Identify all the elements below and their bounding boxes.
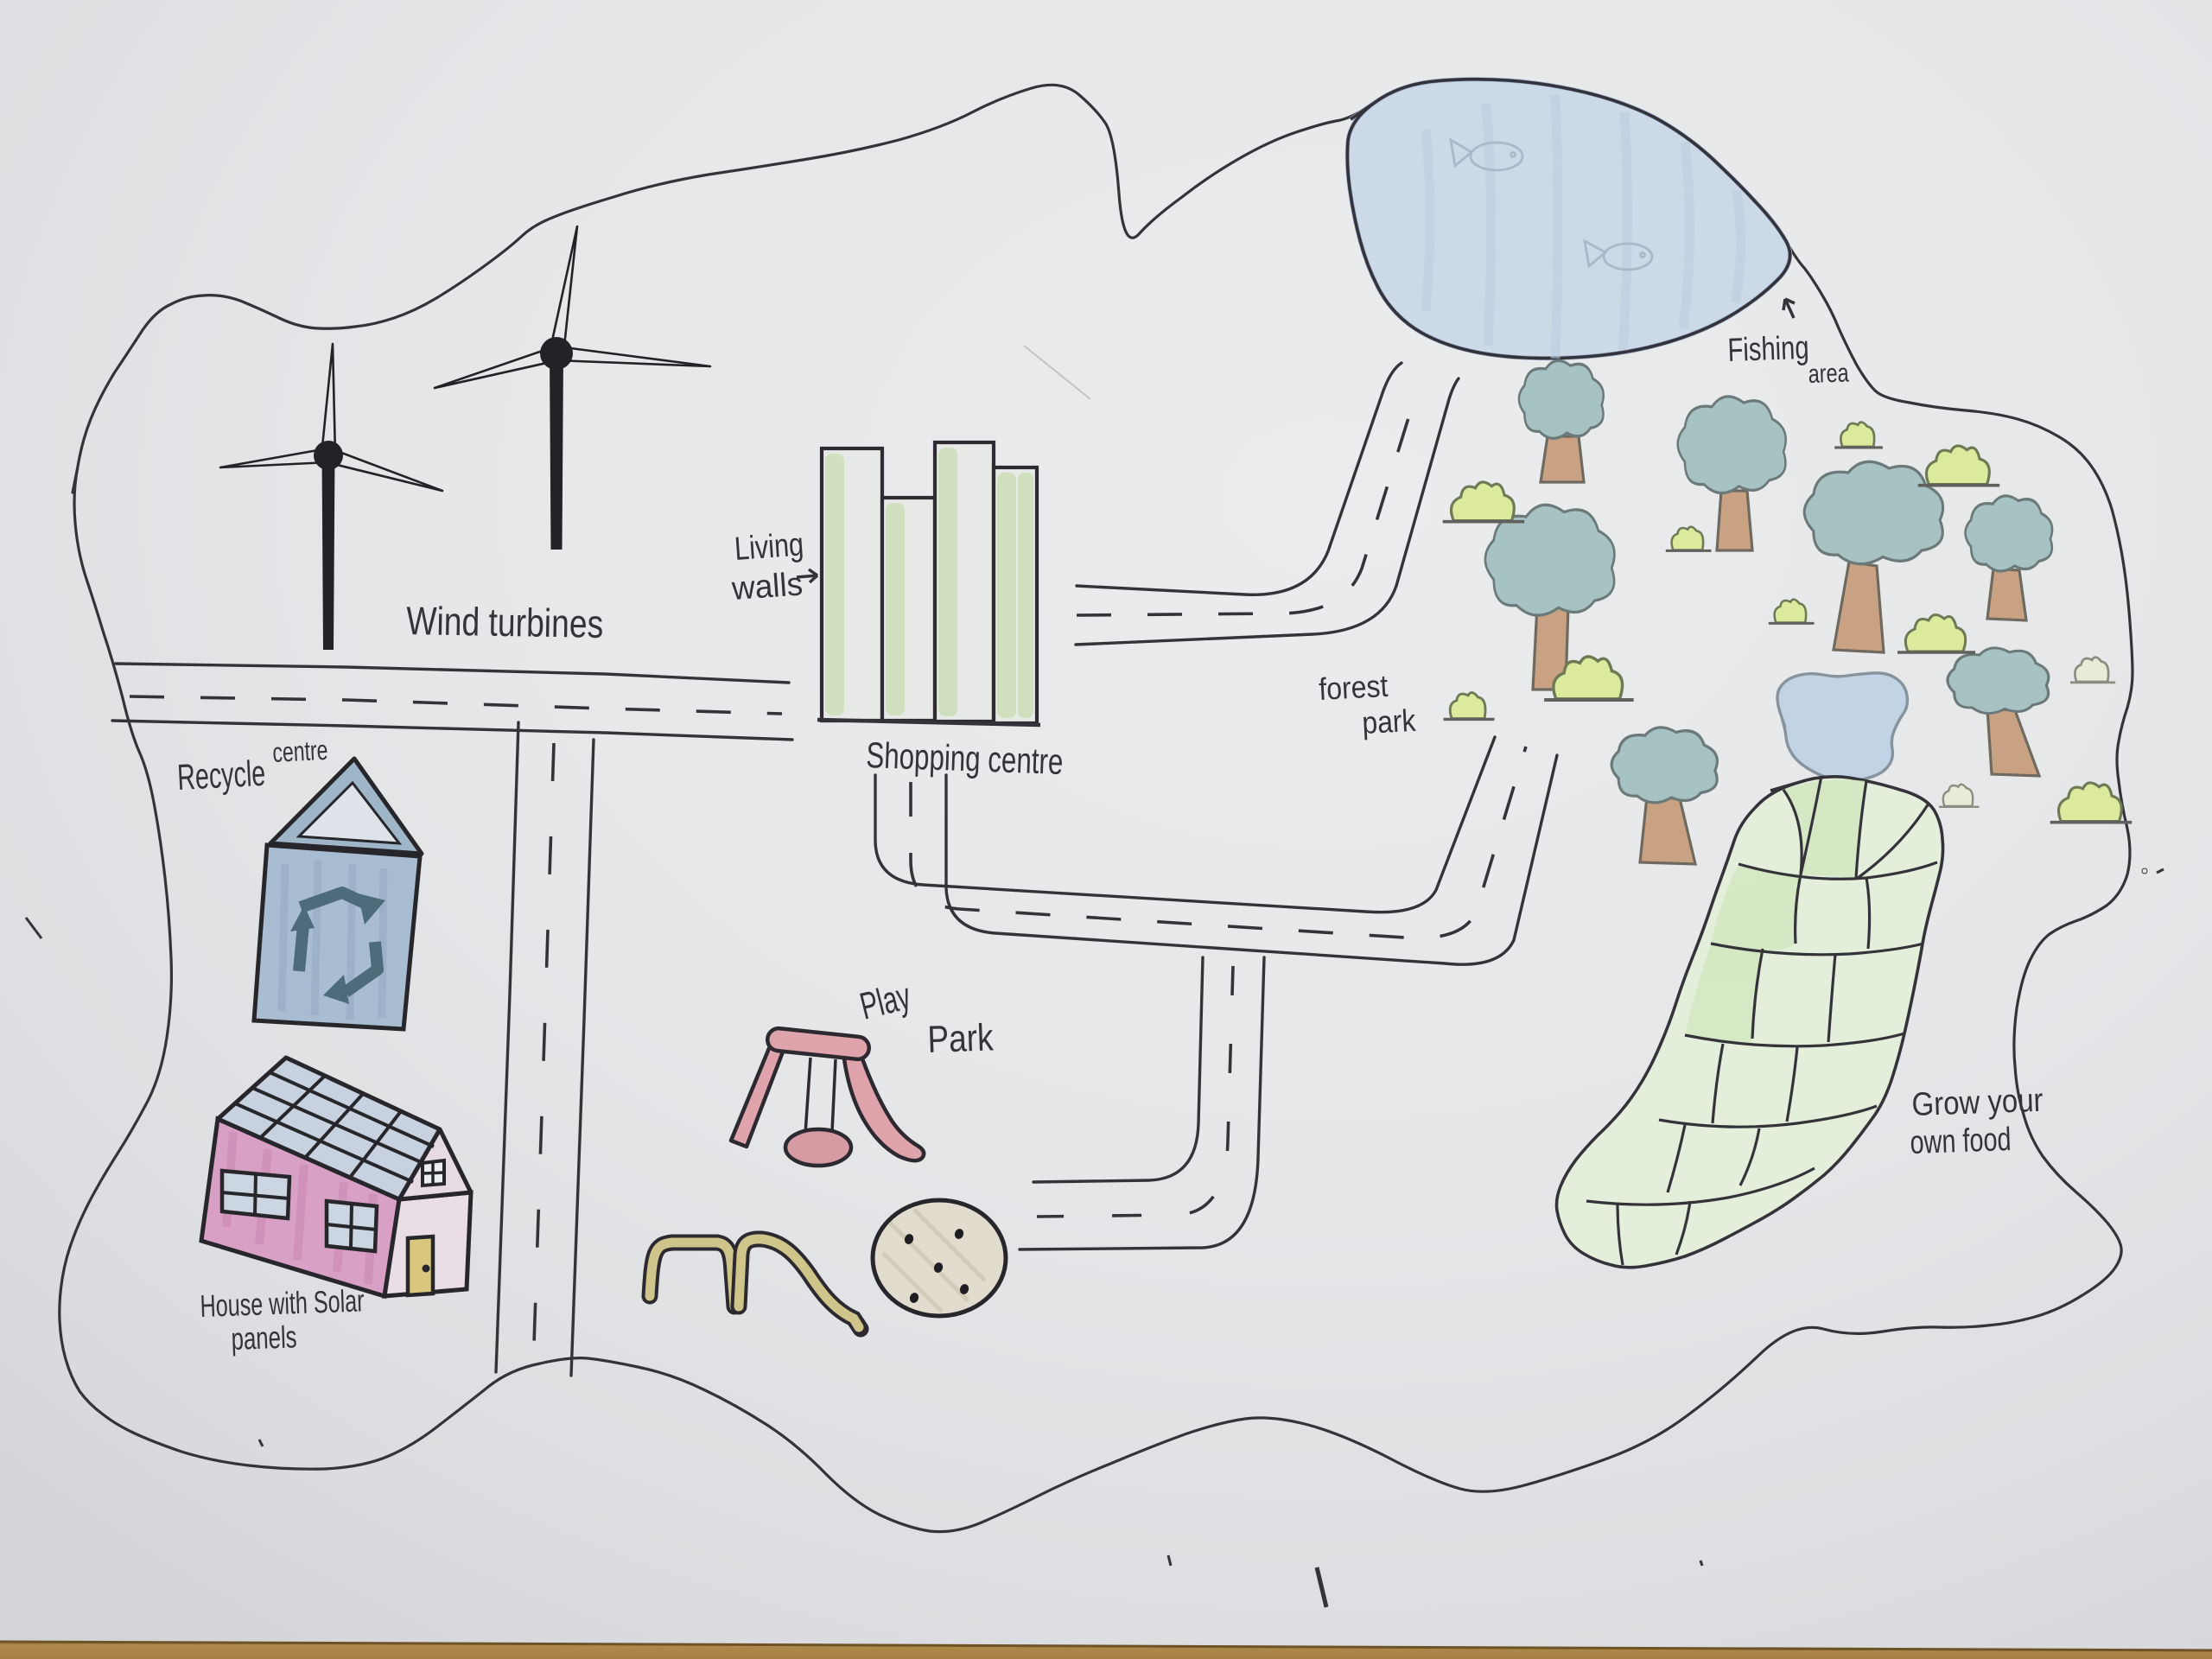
svg-text:Park: Park bbox=[927, 1016, 995, 1061]
svg-text:House with Solar: House with Solar bbox=[200, 1282, 365, 1324]
svg-text:forest: forest bbox=[1318, 668, 1389, 707]
svg-text:own food: own food bbox=[1910, 1122, 2012, 1161]
svg-text:centre: centre bbox=[271, 734, 328, 768]
svg-text:panels: panels bbox=[231, 1319, 297, 1357]
svg-text:Wind turbines: Wind turbines bbox=[406, 598, 604, 646]
svg-text:Shopping centre: Shopping centre bbox=[866, 734, 1065, 782]
svg-text:area: area bbox=[1808, 359, 1849, 389]
svg-text:park: park bbox=[1361, 702, 1417, 741]
svg-text:walls: walls bbox=[730, 566, 804, 607]
svg-text:Living: Living bbox=[734, 526, 805, 567]
svg-text:Fishing: Fishing bbox=[1727, 330, 1809, 369]
svg-text:Recycle: Recycle bbox=[176, 753, 266, 798]
svg-text:Grow your: Grow your bbox=[1911, 1083, 2044, 1123]
